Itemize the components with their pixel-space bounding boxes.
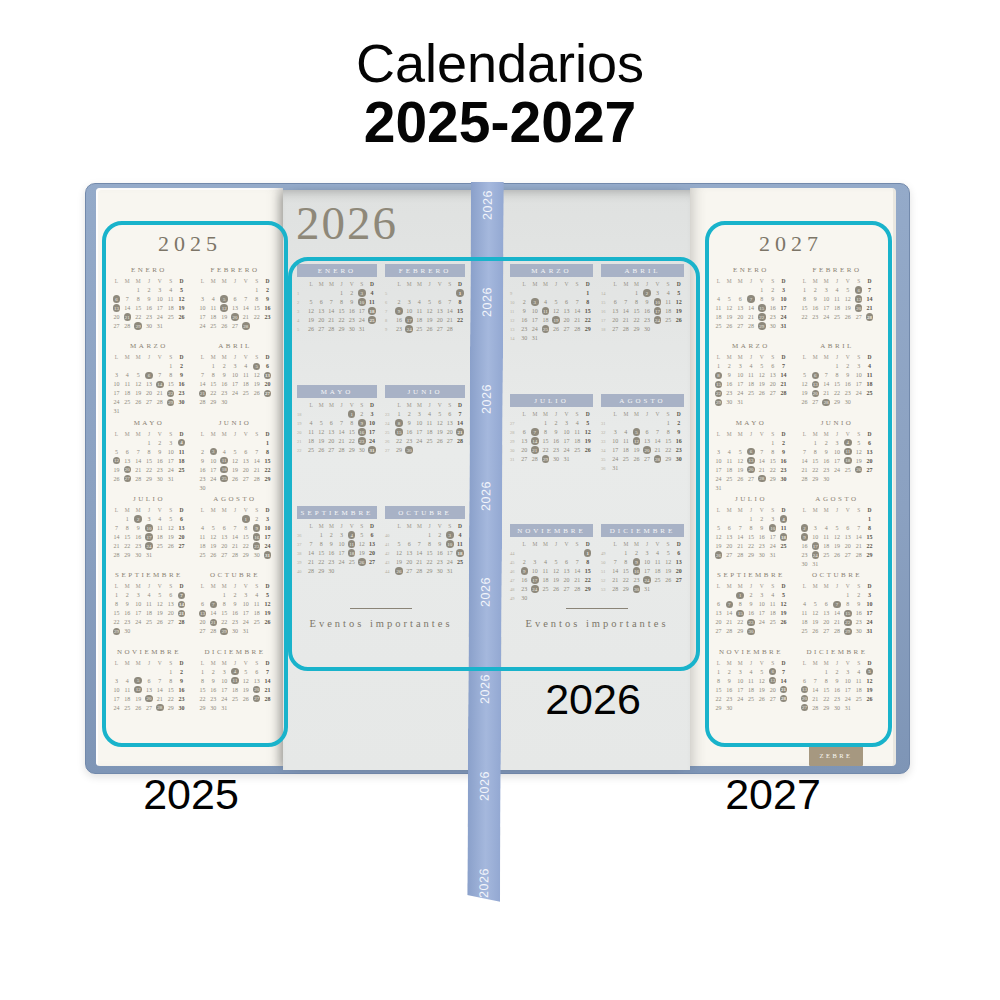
- annotation-label-2027: 2027: [683, 770, 863, 819]
- page-subtitle: 2025-2027: [0, 94, 1000, 151]
- brand-stamp: ZEBRE: [809, 744, 863, 766]
- headline: Calendarios 2025-2027: [0, 36, 1000, 151]
- ribbon-year-text: 2026: [477, 771, 491, 801]
- highlight-box-2025: [102, 221, 288, 747]
- product-image: Calendarios 2025-2027 2025 2026 2027 ENE…: [0, 0, 1000, 1000]
- year-heading-2026: 2026: [296, 196, 398, 250]
- ribbon-year-text: 2026: [480, 190, 494, 220]
- annotation-label-2025: 2025: [101, 770, 281, 819]
- ribbon-year-text: 2026: [478, 674, 492, 704]
- highlight-box-2026: [288, 257, 700, 671]
- page-title: Calendarios: [0, 36, 1000, 90]
- ribbon-year-text: 2026: [477, 868, 491, 898]
- annotation-label-2026: 2026: [493, 675, 693, 724]
- highlight-box-2027: [705, 221, 892, 747]
